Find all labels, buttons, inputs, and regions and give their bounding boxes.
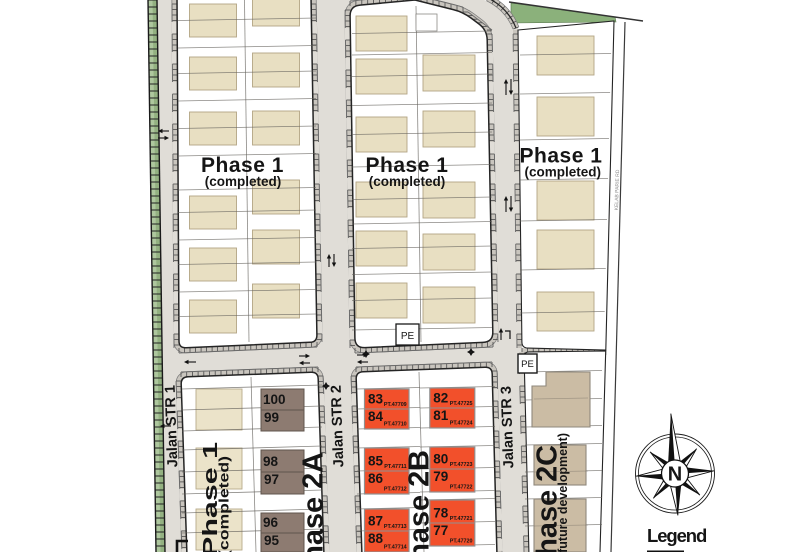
svg-text:(completed): (completed) bbox=[369, 174, 446, 189]
svg-text:82: 82 bbox=[433, 391, 448, 406]
svg-text:(future development): (future development) bbox=[555, 433, 570, 552]
svg-text:87: 87 bbox=[368, 514, 383, 529]
svg-text:(completed): (completed) bbox=[205, 174, 282, 189]
svg-text:Jalan STR 2: Jalan STR 2 bbox=[329, 385, 348, 468]
svg-text:(completed): (completed) bbox=[217, 456, 232, 552]
svg-text:PT.47709: PT.47709 bbox=[384, 402, 407, 408]
svg-text:PE: PE bbox=[521, 359, 534, 370]
svg-text:81: 81 bbox=[433, 408, 449, 423]
svg-text:PT.47725: PT.47725 bbox=[450, 401, 473, 407]
svg-text:78: 78 bbox=[433, 506, 449, 521]
svg-text:PT.47724: PT.47724 bbox=[450, 421, 473, 427]
svg-text:PT.47710: PT.47710 bbox=[384, 422, 407, 428]
svg-text:Jalan STR 3: Jalan STR 3 bbox=[499, 386, 518, 469]
svg-text:PE: PE bbox=[401, 331, 415, 342]
svg-text:100: 100 bbox=[263, 392, 286, 407]
svg-text:Phase 2A: Phase 2A bbox=[298, 452, 330, 552]
svg-text:97: 97 bbox=[264, 472, 279, 487]
svg-text:80: 80 bbox=[433, 452, 448, 467]
svg-text:79: 79 bbox=[433, 469, 448, 484]
svg-text:98: 98 bbox=[263, 454, 279, 469]
svg-text:N: N bbox=[668, 464, 682, 486]
svg-text:(completed): (completed) bbox=[525, 165, 602, 180]
svg-text:84: 84 bbox=[368, 409, 384, 424]
svg-text:77: 77 bbox=[433, 523, 448, 538]
svg-text:95: 95 bbox=[264, 533, 280, 548]
svg-text:88: 88 bbox=[368, 531, 384, 546]
svg-text:PT.47722: PT.47722 bbox=[450, 485, 473, 491]
svg-text:Legend: Legend bbox=[647, 525, 707, 546]
svg-text:85: 85 bbox=[368, 454, 384, 469]
svg-text:KELAB PARIE RD: KELAB PARIE RD bbox=[614, 169, 621, 210]
svg-text:99: 99 bbox=[264, 410, 279, 425]
svg-text:86: 86 bbox=[368, 471, 384, 486]
svg-text:PT.47723: PT.47723 bbox=[450, 462, 473, 468]
svg-text:Phase 2B: Phase 2B bbox=[404, 450, 436, 552]
svg-text:PT.47721: PT.47721 bbox=[450, 516, 473, 522]
svg-text:PT.47720: PT.47720 bbox=[450, 539, 473, 545]
svg-text:96: 96 bbox=[263, 515, 279, 530]
svg-text:83: 83 bbox=[368, 392, 384, 407]
